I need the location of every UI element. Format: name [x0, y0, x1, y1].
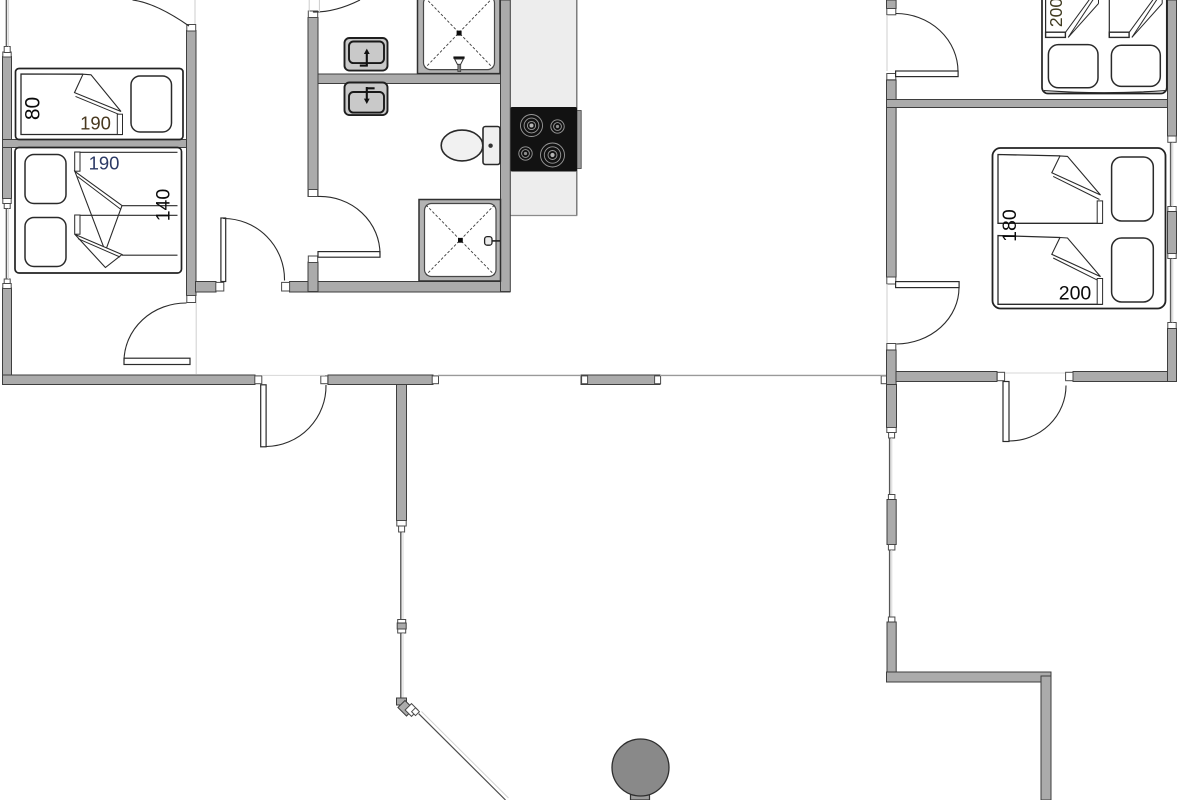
svg-text:190: 190 [89, 153, 120, 174]
svg-text:180: 180 [999, 209, 1021, 242]
svg-text:200: 200 [1046, 0, 1066, 27]
svg-text:190: 190 [80, 113, 111, 134]
svg-text:200: 200 [1059, 283, 1092, 305]
svg-text:140: 140 [152, 189, 174, 222]
svg-text:80: 80 [22, 97, 45, 120]
